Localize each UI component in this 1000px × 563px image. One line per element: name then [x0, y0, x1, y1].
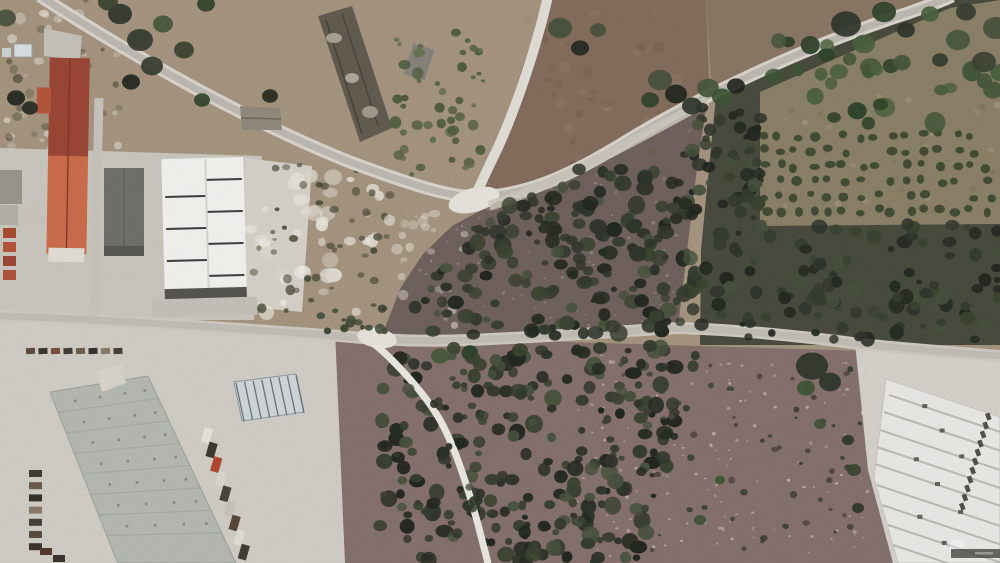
- listing-photo-stage: [0, 0, 1000, 563]
- scale-badge: [951, 549, 1000, 558]
- satellite-photo: [0, 0, 1000, 563]
